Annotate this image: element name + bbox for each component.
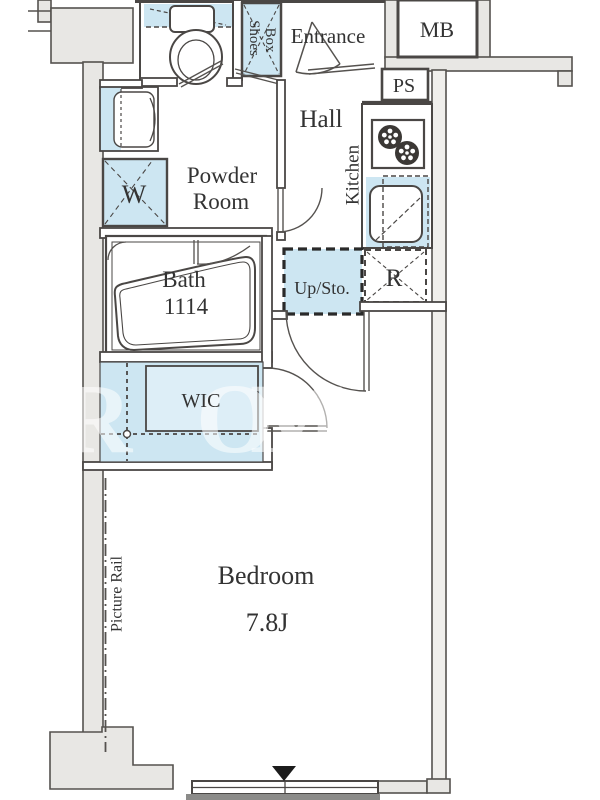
label-powder: Powder (187, 163, 258, 188)
label-bath-size: 1114 (164, 294, 209, 319)
label-upper-storage: Up/Sto. (294, 278, 350, 298)
label-kitchen: Kitchen (343, 144, 364, 205)
washbasin (100, 87, 158, 151)
label-mb: MB (420, 17, 454, 42)
powder-room (100, 80, 322, 240)
label-washing-machine: W (122, 180, 147, 209)
balcony-window (186, 766, 380, 800)
floorplan-svg: R O M MB PS Entrance Hall Kitchen Shoes … (0, 0, 600, 800)
label-bedroom: Bedroom (218, 561, 315, 590)
floorplan-image: R O M MB PS Entrance Hall Kitchen Shoes … (0, 0, 600, 800)
label-picture-rail: Picture Rail (109, 555, 126, 632)
label-shoes: Shoes (246, 20, 262, 56)
watermark: R O M (60, 363, 344, 474)
label-ps: PS (393, 75, 415, 97)
watermark-letter: R (60, 363, 134, 474)
label-wic: WIC (182, 390, 221, 412)
kitchen-sink (366, 176, 430, 247)
toilet-fixture (170, 6, 222, 84)
label-bath: Bath (162, 267, 206, 292)
label-hall: Hall (299, 106, 342, 133)
stove-burners (372, 120, 424, 168)
label-box: Box (262, 27, 278, 53)
label-refrigerator: R (386, 265, 403, 292)
label-entrance: Entrance (291, 24, 366, 48)
window-marker-triangle (272, 766, 296, 781)
toilet-room (140, 0, 242, 87)
label-powder-room: Room (193, 189, 249, 214)
powder-room-door (278, 188, 322, 232)
watermark-letter: M (250, 363, 344, 474)
label-bedroom-size: 7.8J (246, 608, 289, 637)
